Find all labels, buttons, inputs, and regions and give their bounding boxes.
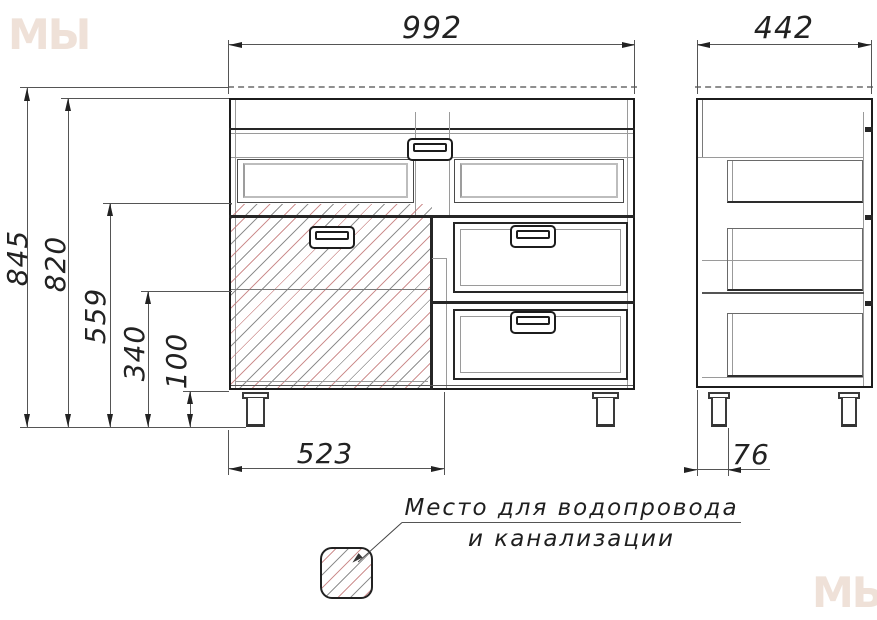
front-top-rail-shadow-line [231,133,633,134]
middle-drawer-handle [510,225,556,248]
dim-label-total-height: 845 [4,223,32,293]
hatch-strip [231,204,432,215]
handle-bar [516,230,550,239]
front-left-leg [246,398,265,427]
dim-label-drawer-level: 340 [121,318,149,388]
side-back-panel-line [702,100,703,157]
side-front-gap-tick-1 [865,127,873,132]
handle-bar [315,231,349,240]
ext-line-845 [20,87,228,88]
dim-label-plumbing-width: 523 [280,440,370,468]
dim-arrow [65,414,71,427]
side-front-gap-tick-3 [865,301,873,306]
dim-arrow [145,291,151,304]
dim-arrow [24,88,30,101]
front-center-post-left-line [415,112,416,215]
legend-underline [402,522,741,523]
hatched-drawer-divider-line [231,289,431,290]
side-drawer-box-2 [727,228,863,291]
dim-label-niche-level: 559 [82,281,110,351]
ext-line [444,392,445,475]
open-niche-left [237,159,414,203]
countertop-dashed-line-front [228,86,637,88]
dim-arrow [622,42,635,48]
dim-arrow [431,466,444,472]
open-niche-right [454,159,624,203]
dim-arrow [187,414,193,427]
side-divider-line [702,292,864,294]
dim-label-leg-offset: 76 [731,441,771,469]
side-shelf-line-1 [702,157,864,158]
dim-label-plinth-height: 100 [163,326,191,396]
box-edge-line [732,161,733,201]
countertop-dashed-line-side [695,86,873,88]
front-top-rail-line [229,128,635,130]
hatched-bottom-line [235,381,428,382]
dim-arrow [229,42,242,48]
niche-inner-recess [460,163,618,198]
dim-label-front-width: 992 [382,14,482,44]
dim-arrow [145,414,151,427]
top-drawer-handle [407,138,453,161]
ext-line [697,40,698,94]
dim-arrow [858,42,871,48]
dim-arrow [107,414,113,427]
dim-arrow [728,467,741,473]
ext-line-559 [103,203,232,204]
ext-line-340 [141,291,232,292]
ext-line-820 [61,98,229,99]
front-right-leg [596,398,615,427]
box-edge-line [732,229,733,289]
dim-arrow [684,467,697,473]
ext-line [634,40,635,94]
dim-arrow [697,42,710,48]
handle-bar [413,143,447,152]
watermark-top-left: МЫ [8,10,89,59]
technical-drawing-canvas: МЫ МЫ [0,0,877,620]
ext-line [228,40,229,94]
ext-line [871,40,872,94]
dim-arrow [24,414,30,427]
dim-arrow [65,98,71,111]
dim-arrow [187,391,193,404]
handle-bar [516,316,550,325]
side-front-gap-tick-2 [865,215,873,220]
floor-extension-line [20,427,246,428]
bottom-drawer-handle [510,311,556,334]
inner-niche-edge-vertical [446,258,447,388]
box-edge-line [732,314,733,375]
legend-note-line1: Место для водопровода [400,497,743,520]
front-center-post-right-line [449,112,450,215]
side-drawer-box-1 [727,160,863,203]
drawer-divider-thick-line [432,301,635,304]
side-drawer-box-3 [727,313,863,377]
ext-line [697,390,698,476]
dim-label-body-height: 820 [42,229,70,299]
front-bottom-inner-line [231,385,633,386]
dim-arrow [107,203,113,216]
niche-inner-recess [243,163,408,198]
inner-niche-edge-horizontal [432,258,446,259]
hatched-door-handle [309,226,355,249]
watermark-bottom-right: МЫ [812,568,877,617]
legend-note-line2: и канализации [400,528,743,551]
side-front-leg [711,398,727,427]
side-front-panel-line [863,112,864,386]
dim-arrow [229,466,242,472]
dim-label-side-depth: 442 [734,14,834,44]
side-back-leg [841,398,857,427]
leader-line [358,522,403,562]
side-bottom-inner-line [702,377,864,378]
